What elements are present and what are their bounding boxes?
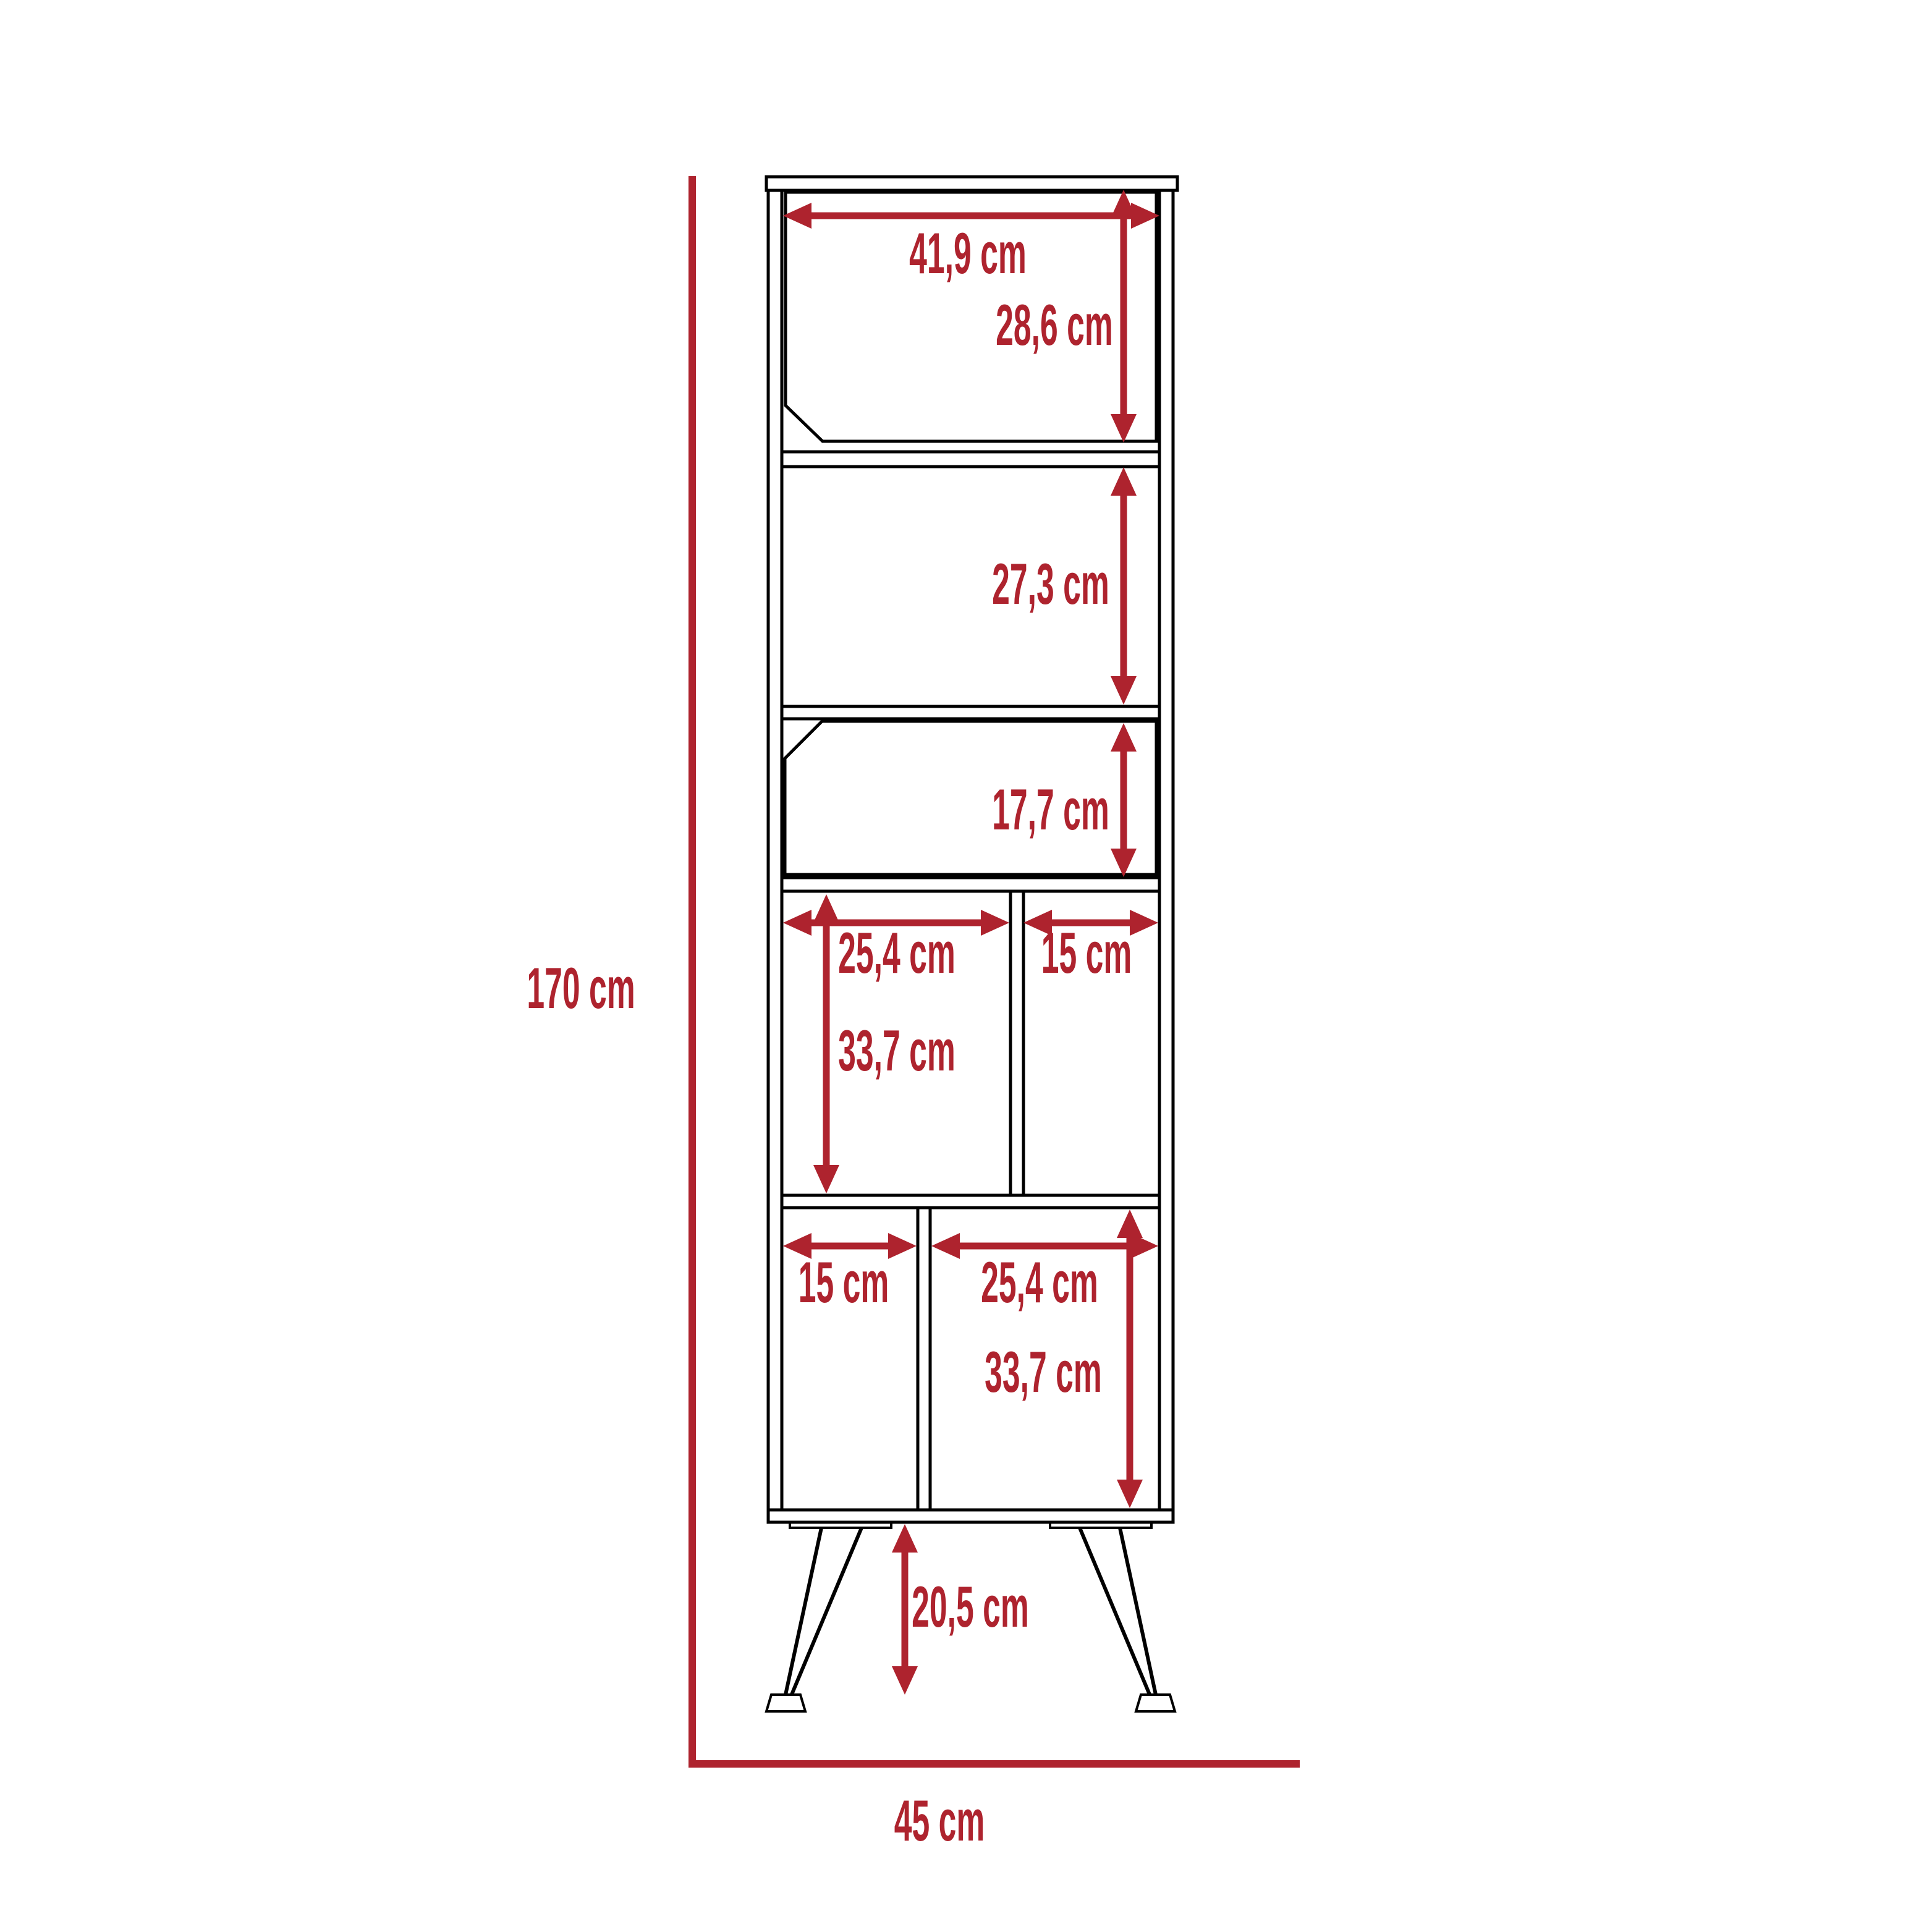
dim-label-overall-height: 170 cm (527, 959, 635, 1017)
top-panel (766, 177, 1177, 190)
left-leg-foot (766, 1695, 805, 1711)
arrow-upper-cubby-height (813, 894, 839, 1193)
dim-label-lower-cubby-right-width: 25,4 cm (981, 1253, 1098, 1311)
overall-height-line (688, 176, 696, 1768)
overall-width-line (688, 1760, 1300, 1768)
cabinet-line-drawing (0, 0, 1932, 1932)
dim-label-upper-cubby-left-width: 25,4 cm (838, 924, 955, 982)
dim-label-upper-cubby-height: 33,7 cm (838, 1022, 955, 1080)
left-leg-plate (790, 1522, 891, 1528)
dim-label-small-door-height: 17,7 cm (992, 781, 1109, 839)
shelf-3 (782, 878, 1159, 891)
dim-label-lower-cubby-left-width: 15 cm (799, 1253, 889, 1311)
shelf-1 (782, 452, 1159, 467)
cabinet-body (768, 190, 1173, 1522)
upper-cubby-divider (1010, 891, 1023, 1195)
shelf-2 (782, 706, 1159, 719)
arrow-open-shelf-height (1111, 467, 1137, 705)
overall-dimension-lines (688, 176, 1300, 1768)
dim-label-top-door-height: 28,6 cm (996, 296, 1113, 354)
dim-label-overall-width: 45 cm (894, 1792, 985, 1850)
dim-label-legs-height: 20,5 cm (912, 1578, 1029, 1636)
dim-label-upper-cubby-right-width: 15 cm (1041, 924, 1132, 982)
arrow-small-door-height (1111, 723, 1137, 877)
right-leg-foot (1136, 1695, 1175, 1711)
lower-cubby-divider (918, 1208, 930, 1510)
dim-label-top-door-width: 41,9 cm (909, 224, 1027, 282)
right-leg-plate (1050, 1522, 1151, 1528)
dim-label-lower-cubby-height: 33,7 cm (985, 1343, 1102, 1401)
shelf-4 (782, 1195, 1159, 1208)
furniture-dimension-diagram: 41,9 cm 28,6 cm 27,3 cm 17,7 cm 25,4 cm … (0, 0, 1932, 1932)
dim-label-open-shelf-height: 27,3 cm (992, 555, 1109, 613)
